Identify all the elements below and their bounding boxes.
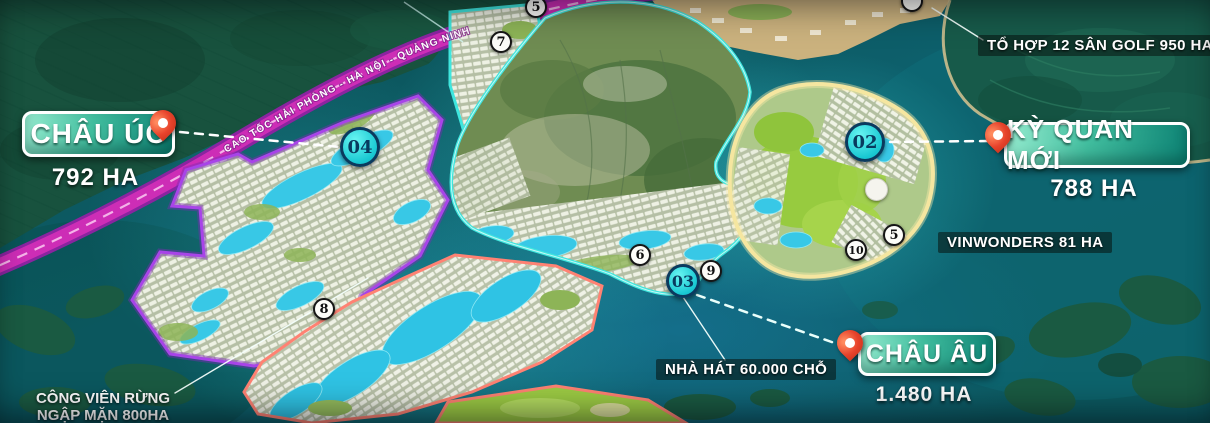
badge-9: 9: [700, 260, 722, 282]
zone-label-ky-quan-moi: KỲ QUAN MỚI 788 HA: [1004, 122, 1184, 203]
zone-label-chau-uc: CHÂU ÚC 792 HA: [22, 111, 169, 192]
badge-10: 10: [845, 239, 867, 261]
golf-complex-label: TỔ HỢP 12 SÂN GOLF 950 HA: [978, 35, 1210, 56]
marker-circle: [865, 178, 888, 201]
badge-04: 04: [340, 127, 380, 167]
badge-03: 03: [666, 264, 700, 298]
zone-pill: CHÂU ÂU: [858, 332, 996, 376]
badge-02: 02: [845, 122, 885, 162]
map-artwork: CAO TỐC HẢI PHÒNG - HÀ NỘI - QUẢNG NINH: [0, 0, 1210, 423]
zone-label-chau-au: CHÂU ÂU 1.480 HA: [858, 332, 990, 407]
mangrove-park-line1: CÔNG VIÊN RỪNG: [18, 391, 188, 408]
badge-6: 6: [629, 244, 651, 266]
zone-pill: KỲ QUAN MỚI: [1004, 122, 1190, 168]
masterplan-map: CAO TỐC HẢI PHÒNG - HÀ NỘI - QUẢNG NINH …: [0, 0, 1210, 423]
badge-8: 8: [313, 298, 335, 320]
mangrove-park-label: CÔNG VIÊN RỪNG NGẬP MẶN 800HA: [18, 391, 188, 423]
badge-7: 7: [490, 31, 512, 53]
zone-area-value: 1.480 HA: [858, 383, 990, 407]
vinwonders-label: VINWONDERS 81 HA: [938, 232, 1112, 253]
badge-5-right: 5: [883, 224, 905, 246]
zone-area-value: 792 HA: [22, 164, 169, 192]
zone-area-value: 788 HA: [1004, 175, 1184, 203]
mangrove-park-line2: NGẬP MẶN 800HA: [18, 408, 188, 423]
theater-label: NHÀ HÁT 60.000 CHỖ: [656, 359, 836, 380]
